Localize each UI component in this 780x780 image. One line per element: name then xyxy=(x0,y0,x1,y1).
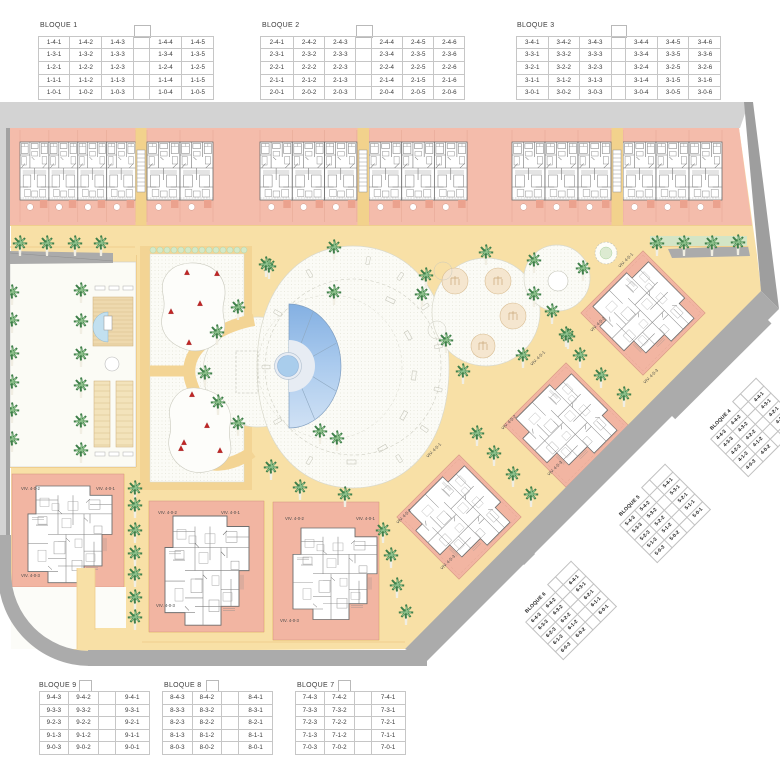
svg-text:VIV. 4-0-2: VIV. 4-0-2 xyxy=(285,516,305,521)
svg-text:VIV. 4-0-2: VIV. 4-0-2 xyxy=(158,510,178,515)
svg-text:VIV. 4-0-3: VIV. 4-0-3 xyxy=(156,603,176,608)
svg-text:VIV. 4-0-3: VIV. 4-0-3 xyxy=(280,618,300,623)
svg-text:VIV. 4-0-1: VIV. 4-0-1 xyxy=(356,516,376,521)
svg-text:VIV. 4-0-3: VIV. 4-0-3 xyxy=(21,573,41,578)
svg-text:VIV. 4-0-1: VIV. 4-0-1 xyxy=(221,510,241,515)
svg-text:VIV. 4-0-2: VIV. 4-0-2 xyxy=(21,486,41,491)
svg-text:VIV. 4-0-1: VIV. 4-0-1 xyxy=(96,486,116,491)
